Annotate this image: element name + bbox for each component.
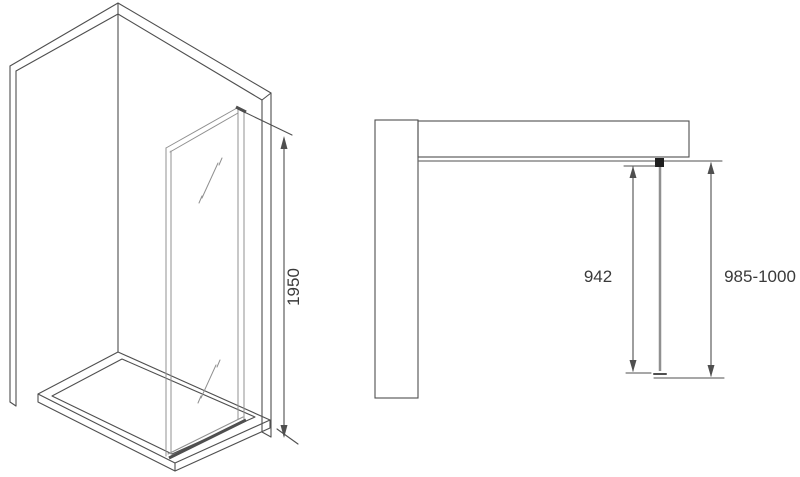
technical-drawing-svg: [0, 0, 800, 477]
wall-plan-horizontal: [418, 121, 722, 161]
corner-walls-3d: [10, 3, 271, 437]
glass-panel-3d: [166, 107, 246, 458]
total-width-dimension: [654, 162, 724, 378]
total-width-dimension-label: 985-1000: [724, 267, 796, 287]
drawing-canvas: 1950 942 985-1000: [0, 0, 800, 477]
glass-reflection-marks: [198, 158, 222, 403]
glass-panel-plan: [654, 158, 666, 374]
wall-plan-vertical: [375, 120, 418, 398]
height-dimension-label: 1950: [284, 268, 304, 306]
bottom-seal: [169, 420, 246, 458]
wall-bracket: [655, 158, 664, 167]
shower-tray-3d: [38, 352, 270, 471]
perspective-view: [10, 3, 298, 471]
plan-view: [375, 120, 724, 398]
glass-width-dimension: [624, 166, 655, 373]
glass-width-dimension-label: 942: [584, 267, 612, 287]
